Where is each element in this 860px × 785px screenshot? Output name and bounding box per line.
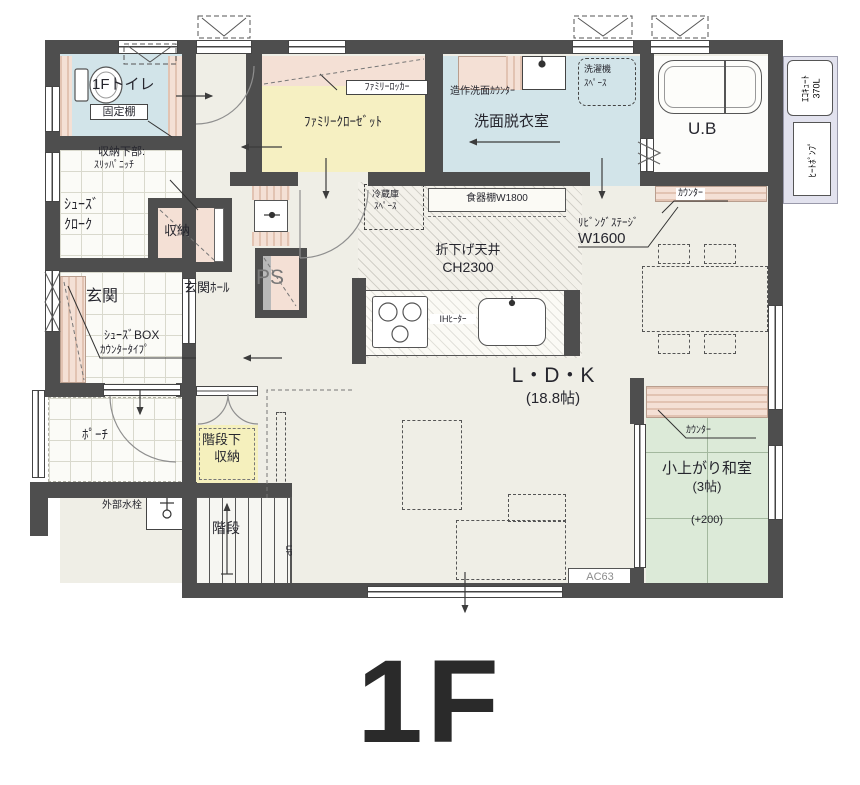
room-label-porch: ﾎﾟｰﾁ [82, 428, 108, 443]
family-locker-label: ﾌｧﾐﾘｰﾛｯｶｰ [346, 80, 428, 95]
toilet-counter-left [60, 56, 72, 136]
cupboard-label: 食器棚W1800 [428, 193, 566, 205]
ih-heater-label: IHﾋｰﾀｰ [430, 314, 476, 324]
cupboard-dashed-line [428, 216, 566, 217]
window [196, 40, 252, 54]
floor-plan-page: ｴｺｷｭｰﾄ 370L ﾋｰﾄﾎﾟﾝﾌﾟ AC63 1Fトイレ 固定棚 収納下部… [0, 0, 860, 785]
window [288, 40, 346, 54]
ceiling-label-2: CH2300 [418, 259, 518, 275]
room-label-tatami: 小上がり和室 [646, 460, 768, 477]
kitchen-sink-icon [478, 298, 546, 346]
shoebox-label-1: ｼｭｰｽﾞBOX [104, 329, 159, 343]
room-label-shoe-cloak-2: ｸﾛｰｸ [64, 216, 92, 232]
washroom-counter-stripes [506, 56, 522, 90]
tatami-size-label: (3帖) [646, 480, 768, 495]
storage-closet-door [214, 208, 224, 262]
bathtub-divider [724, 61, 726, 113]
porch-floor [48, 397, 196, 482]
room-label-genkan: 玄関 [86, 288, 118, 306]
tatami-counter-label: ｶｳﾝﾀｰ [686, 425, 711, 437]
ecocute-capacity: 370L [812, 66, 822, 110]
hall-basin-counter-top [252, 186, 290, 200]
living-stage-label-2: W1600 [578, 230, 626, 247]
heatpump-unit: ﾋｰﾄﾎﾟﾝﾌﾟ [793, 122, 831, 196]
wall [640, 172, 770, 186]
sofa-outline [508, 494, 566, 522]
hall-basin-counter-bottom [252, 232, 290, 246]
wall [299, 248, 307, 318]
dining-chair [658, 334, 690, 354]
shoebox-label-2: ｶｳﾝﾀｰﾀｲﾌﾟ [100, 344, 150, 357]
room-label-stairs: 階段 [212, 520, 240, 536]
slipper-niche-label: ｽﾘｯﾊﾟﾆｯﾁ [94, 160, 134, 172]
dining-chair [704, 244, 736, 264]
window [45, 152, 60, 202]
understair-label-1: 階段下 [202, 433, 241, 448]
ldk-size-label: (18.8帖) [493, 390, 613, 407]
wall [630, 568, 644, 598]
wall [564, 290, 580, 356]
room-label-bath: U.B [688, 119, 716, 139]
wall [224, 198, 232, 272]
wall [230, 172, 298, 186]
stairs-up-label: UP [284, 545, 293, 556]
tatami-height-label: (+200) [646, 514, 768, 527]
room-label-hall: 玄関ﾎｰﾙ [184, 281, 230, 296]
hall-basin-sink [254, 200, 288, 232]
shoebox-counter [60, 276, 86, 383]
wall [30, 482, 197, 498]
room-label-toilet: 1Fトイレ [92, 76, 155, 93]
understair-label-2: 収納 [214, 450, 240, 465]
room-label-shoe-cloak-1: ｼｭｰｽﾞ [64, 196, 99, 212]
wall [425, 54, 443, 186]
sofa-outline [402, 420, 462, 510]
room-label-family-closet: ﾌｧﾐﾘｰｸﾛｰｾﾞｯﾄ [263, 115, 423, 130]
ecocute-label: ｴｺｷｭｰﾄ [799, 66, 812, 110]
washer-space-label-2: ｽﾍﾟｰｽ [584, 78, 607, 88]
tatami-grid-line-v [707, 418, 708, 583]
window [32, 390, 45, 478]
wall [630, 378, 644, 424]
heatpump-label: ﾋｰﾄﾎﾟﾝﾌﾟ [806, 141, 819, 177]
tatami-counter [646, 386, 768, 418]
bathtub-inner-line [664, 66, 756, 108]
wall [148, 198, 232, 208]
room-label-storage: 収納 [164, 224, 190, 239]
toilet-floor [60, 54, 182, 136]
wall [352, 278, 366, 364]
window [45, 86, 60, 132]
floor-plan: ｴｺｷｭｰﾄ 370L ﾋｰﾄﾎﾟﾝﾌﾟ AC63 1Fトイレ 固定棚 収納下部… [0, 0, 860, 620]
washroom-sink [522, 56, 566, 90]
window [367, 586, 563, 598]
fridge-label-1: 冷蔵庫 [372, 189, 399, 199]
tatami-grid-line-h1 [646, 452, 768, 453]
window [768, 305, 783, 410]
ac-label: AC63 [586, 571, 614, 584]
stairs-treads [196, 497, 292, 583]
room-label-ldk: L・D・K [493, 364, 613, 388]
washer-space-label-1: 洗濯機 [584, 64, 611, 74]
storage-lower-label: 収納下部: [98, 146, 145, 159]
toilet-shelf-right [168, 56, 182, 136]
cooktop-icon [372, 296, 428, 348]
window [45, 270, 60, 332]
fixed-shelf-label: 固定棚 [90, 104, 148, 120]
window [634, 424, 646, 568]
washroom-counter-label: 造作洗面ｶｳﾝﾀｰ [450, 86, 515, 98]
ps-label: PS [256, 266, 284, 290]
wall [45, 383, 105, 397]
window [572, 40, 634, 54]
window [118, 40, 178, 54]
window [103, 384, 181, 396]
ub-side-counter [655, 186, 767, 202]
ecocute-unit: ｴｺｷｭｰﾄ 370L [787, 60, 833, 116]
floor-title: 1F [0, 618, 860, 785]
sofa-outline [456, 520, 566, 580]
external-faucet-label: 外部水栓 [102, 500, 142, 512]
window [196, 386, 258, 396]
window [650, 40, 710, 54]
wall [368, 172, 590, 186]
wall [30, 482, 48, 536]
window [640, 138, 654, 172]
window [768, 445, 783, 520]
wall [148, 262, 232, 272]
wall [246, 54, 262, 186]
wall [148, 198, 158, 272]
dining-chair [704, 334, 736, 354]
dining-table [642, 266, 768, 332]
wall [182, 483, 292, 497]
room-label-washroom: 洗面脱衣室 [474, 113, 549, 130]
living-stage-label-1: ﾘﾋﾞﾝｸﾞｽﾃｰｼﾞ [578, 217, 639, 230]
ub-counter-label: ｶｳﾝﾀｰ [676, 188, 705, 200]
dining-chair [658, 244, 690, 264]
ceiling-label-1: 折下げ天井 [418, 243, 518, 258]
wall [255, 310, 307, 318]
fridge-label-2: ｽﾍﾟｰｽ [374, 201, 397, 211]
